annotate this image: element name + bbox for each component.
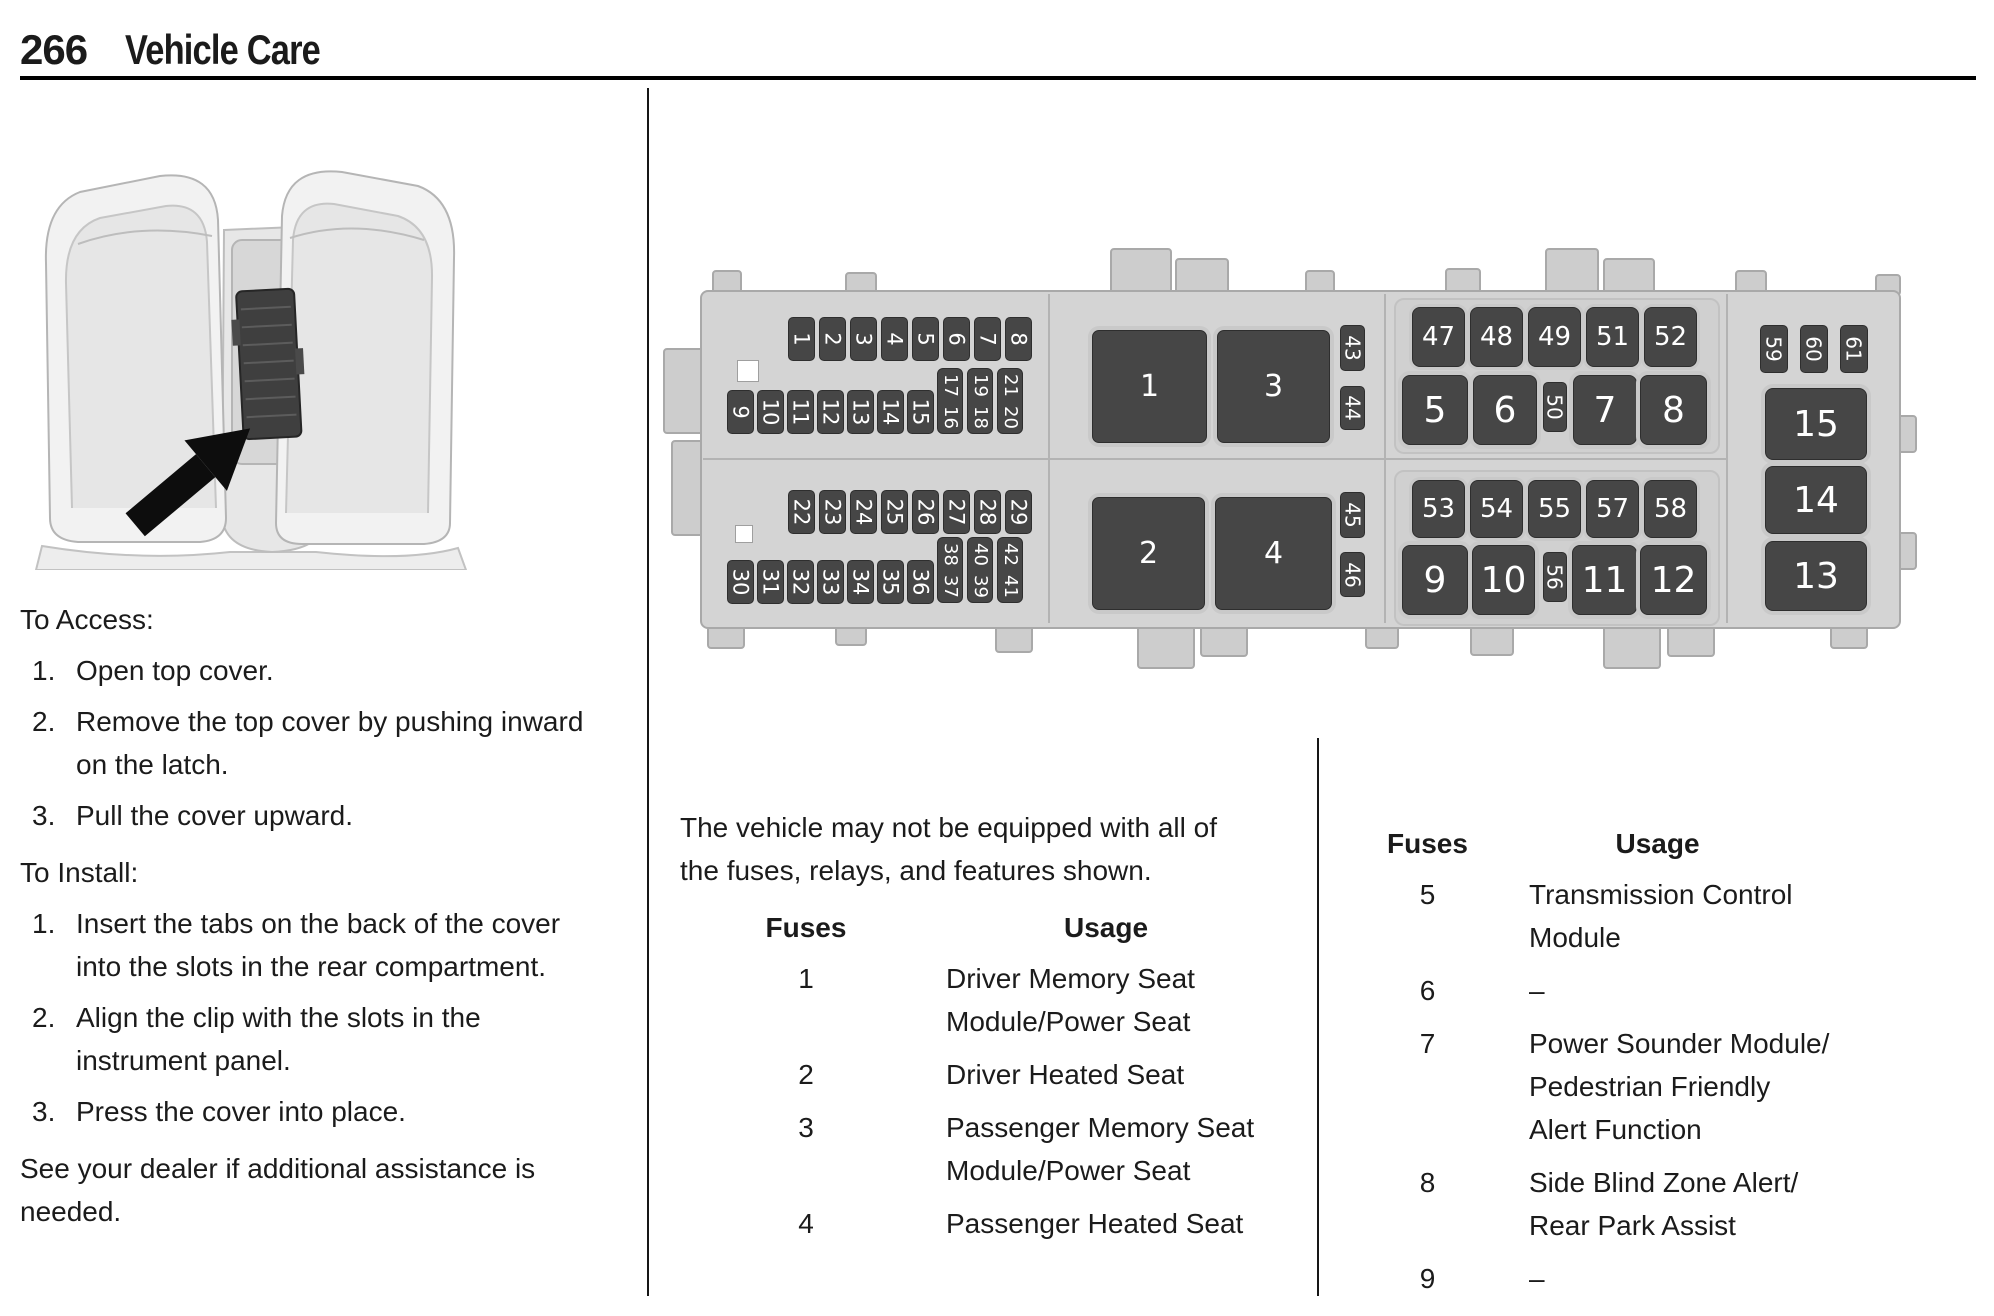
fuse-label: 32 <box>789 569 813 596</box>
text-line: instrument panel. <box>76 1039 481 1082</box>
fuse-label: 15 <box>909 399 933 426</box>
text-line: Pull the cover upward. <box>76 794 353 837</box>
text-line: See your dealer if additional assistance… <box>20 1147 620 1190</box>
step-number: 2. <box>20 700 76 786</box>
text-line: – <box>1529 1257 1545 1300</box>
fuse-label: 50 <box>1543 394 1567 419</box>
fuse-42-41: 4241 <box>997 537 1023 603</box>
fuse-15: 15 <box>1765 388 1867 460</box>
mount-tab <box>1603 623 1661 669</box>
fuses-column-header: Fuses <box>1340 822 1515 865</box>
fuses-column-header: Fuses <box>680 906 932 949</box>
fuse-usage-cell: Side Blind Zone Alert/Rear Park Assist <box>1529 1161 1798 1247</box>
fuse-label: 22 <box>790 499 814 526</box>
fuse-label: 42 <box>1000 543 1021 566</box>
fuse-35: 35 <box>877 560 904 604</box>
fuse-3: 3 <box>850 317 877 361</box>
fuse-label: 27 <box>945 499 969 526</box>
fuse-6: 6 <box>1473 375 1537 445</box>
fuse-6: 6 <box>943 317 970 361</box>
fuse-label: 45 <box>1341 502 1365 527</box>
fuse-26: 26 <box>912 490 939 534</box>
fuse-number-cell: 3 <box>680 1106 932 1192</box>
text-line: Transmission Control <box>1529 873 1792 916</box>
mount-hole <box>735 525 753 543</box>
step-text: Press the cover into place. <box>76 1090 406 1133</box>
fuse-usage-row: 8Side Blind Zone Alert/Rear Park Assist <box>1340 1161 1800 1247</box>
fuse-12: 12 <box>817 390 844 434</box>
fuse-label: 1 <box>790 332 814 345</box>
fuse-10: 10 <box>757 390 784 434</box>
text-line: Passenger Memory Seat <box>946 1106 1254 1149</box>
fuse-31: 31 <box>757 560 784 604</box>
text-line: Side Blind Zone Alert/ <box>1529 1161 1798 1204</box>
fuse-label: 12 <box>819 399 843 426</box>
fuse-usage-row: 3Passenger Memory SeatModule/Power Seat <box>680 1106 1280 1192</box>
fuse-9: 9 <box>1402 545 1468 615</box>
fuse-49: 49 <box>1528 307 1581 367</box>
text-line: Module/Power Seat <box>946 1149 1254 1192</box>
fuse-10: 10 <box>1472 545 1535 615</box>
fuse-label: 11 <box>789 399 813 426</box>
step-text: Remove the top cover by pushing inwardon… <box>76 700 583 786</box>
fuse-usage-row: 5Transmission ControlModule <box>1340 873 1800 959</box>
rear-console-illustration <box>20 88 480 570</box>
fuse-55: 55 <box>1528 480 1581 538</box>
fuse-label: 40 <box>970 543 991 566</box>
fuse-number-cell: 4 <box>680 1202 932 1245</box>
fuse-label: 21 <box>1000 374 1021 397</box>
fuse-label: 41 <box>1000 575 1021 598</box>
text-line: Power Sounder Module/ <box>1529 1022 1829 1065</box>
fuse-5: 5 <box>1402 375 1468 445</box>
fuse-number-cell: 5 <box>1340 873 1515 959</box>
fuse-number-cell: 6 <box>1340 969 1515 1012</box>
step-text: Open top cover. <box>76 649 274 692</box>
fuse-52: 52 <box>1644 307 1697 367</box>
text-line: needed. <box>20 1190 620 1233</box>
fuse-54: 54 <box>1470 480 1523 538</box>
fuse-13: 13 <box>847 390 874 434</box>
fuse-usage-row: 4Passenger Heated Seat <box>680 1202 1280 1245</box>
fuse-label: 4 <box>883 332 907 345</box>
fuse-label: 13 <box>849 399 873 426</box>
fuse-30: 30 <box>727 560 754 604</box>
fuse-2: 2 <box>1092 497 1205 610</box>
fuse-label: 61 <box>1842 336 1866 361</box>
fuse-usage-row: 1Driver Memory SeatModule/Power Seat <box>680 957 1280 1043</box>
fuse-label: 10 <box>759 399 783 426</box>
text-line: Open top cover. <box>76 649 274 692</box>
fuse-label: 19 <box>970 374 991 397</box>
fuse-40-39: 4039 <box>967 537 993 603</box>
fuse-label: 60 <box>1802 336 1826 361</box>
dealer-note: See your dealer if additional assistance… <box>20 1147 620 1233</box>
fuse-56: 56 <box>1543 552 1567 602</box>
fuse-usage-cell: Passenger Memory SeatModule/Power Seat <box>946 1106 1254 1192</box>
text-line: the fuses, relays, and features shown. <box>680 849 1280 892</box>
mount-tab <box>1137 623 1195 669</box>
step-text: Insert the tabs on the back of the cover… <box>76 902 560 988</box>
fuse-38-37: 3837 <box>937 537 963 603</box>
fuse-1: 1 <box>788 317 815 361</box>
step-number: 3. <box>20 1090 76 1133</box>
fuse-label: 39 <box>970 575 991 598</box>
text-line: Driver Heated Seat <box>946 1053 1184 1096</box>
install-heading: To Install: <box>20 851 620 894</box>
fuse-label: 20 <box>1000 406 1021 429</box>
fuse-number-cell: 8 <box>1340 1161 1515 1247</box>
fuse-53: 53 <box>1412 480 1465 538</box>
fuse-28: 28 <box>974 490 1001 534</box>
fuse-3: 3 <box>1217 330 1330 443</box>
instruction-step: 3.Press the cover into place. <box>20 1090 620 1133</box>
text-line: The vehicle may not be equipped with all… <box>680 806 1280 849</box>
fuse-27: 27 <box>943 490 970 534</box>
section-seam <box>703 458 1726 460</box>
fuse-label: 2 <box>821 332 845 345</box>
fuse-50: 50 <box>1543 382 1567 432</box>
fuse-21-20: 2120 <box>997 368 1023 434</box>
right-column: FusesUsage5Transmission ControlModule6–7… <box>1340 822 1800 1310</box>
fuse-13: 13 <box>1765 541 1867 611</box>
fuse-14: 14 <box>877 390 904 434</box>
fuse-usage-cell: Transmission ControlModule <box>1529 873 1792 959</box>
text-line: Module <box>1529 916 1792 959</box>
usage-column-header: Usage <box>932 906 1280 949</box>
fuse-label: 56 <box>1543 564 1567 589</box>
fuse-label: 35 <box>879 569 903 596</box>
equipment-note: The vehicle may not be equipped with all… <box>680 806 1280 892</box>
fuse-usage-cell: – <box>1529 1257 1545 1300</box>
fuse-box-diagram: 1234567891011121314151716191821202223242… <box>545 240 1935 670</box>
fuse-label: 14 <box>879 399 903 426</box>
fuse-usage-table-1: FusesUsage1Driver Memory SeatModule/Powe… <box>680 906 1280 1245</box>
section-seam <box>1726 294 1728 623</box>
fuse-number-cell: 2 <box>680 1053 932 1096</box>
fuse-9: 9 <box>727 390 754 434</box>
fuse-label: 6 <box>945 332 969 345</box>
page-title: Vehicle Care <box>125 26 320 74</box>
fuse-usage-cell: Passenger Heated Seat <box>946 1202 1243 1245</box>
fuse-33: 33 <box>817 560 844 604</box>
fuse-label: 17 <box>940 374 961 397</box>
fuse-1: 1 <box>1092 330 1207 443</box>
mount-tab <box>663 348 705 434</box>
left-column-text: To Access: 1.Open top cover.2.Remove the… <box>20 598 620 1233</box>
fuse-label: 28 <box>976 499 1000 526</box>
fuse-label: 18 <box>970 406 991 429</box>
fuse-36: 36 <box>907 560 934 604</box>
fuse-label: 23 <box>821 499 845 526</box>
fuse-17-16: 1716 <box>937 368 963 434</box>
fuse-19-18: 1918 <box>967 368 993 434</box>
fuse-11: 11 <box>1572 545 1637 615</box>
text-line: Driver Memory Seat <box>946 957 1195 1000</box>
fuse-4: 4 <box>1215 497 1332 610</box>
fuse-usage-row: 9– <box>1340 1257 1800 1300</box>
text-line: Remove the top cover by pushing inward <box>76 700 583 743</box>
page-number: 266 <box>20 26 87 74</box>
usage-column-header: Usage <box>1515 822 1800 865</box>
fuse-label: 16 <box>940 406 961 429</box>
fuse-label: 3 <box>852 332 876 345</box>
fuse-57: 57 <box>1586 480 1639 538</box>
fuse-47: 47 <box>1412 307 1465 367</box>
instruction-step: 2.Remove the top cover by pushing inward… <box>20 700 620 786</box>
fuse-8: 8 <box>1005 317 1032 361</box>
fuse-11: 11 <box>787 390 814 434</box>
fuse-5: 5 <box>912 317 939 361</box>
instruction-step: 3.Pull the cover upward. <box>20 794 620 837</box>
rear-fuse-block <box>230 288 308 439</box>
fuse-label: 44 <box>1341 395 1365 420</box>
mount-hole <box>737 360 759 382</box>
fuse-34: 34 <box>847 560 874 604</box>
step-text: Align the clip with the slots in theinst… <box>76 996 481 1082</box>
text-line: Module/Power Seat <box>946 1000 1195 1043</box>
text-line: Alert Function <box>1529 1108 1829 1151</box>
fuse-61: 61 <box>1840 325 1868 373</box>
mount-tab <box>1110 248 1172 296</box>
fuse-24: 24 <box>850 490 877 534</box>
fuse-number-cell: 9 <box>1340 1257 1515 1300</box>
instruction-step: 1.Open top cover. <box>20 649 620 692</box>
fuse-label: 5 <box>914 332 938 345</box>
text-line: into the slots in the rear compartment. <box>76 945 560 988</box>
fuse-7: 7 <box>1573 375 1637 445</box>
table-header-row: FusesUsage <box>680 906 1280 949</box>
fuse-7: 7 <box>974 317 1001 361</box>
fuse-2: 2 <box>819 317 846 361</box>
fuse-4: 4 <box>881 317 908 361</box>
mount-tab <box>1545 248 1599 296</box>
table-header-row: FusesUsage <box>1340 822 1800 865</box>
fuse-label: 8 <box>1007 332 1031 345</box>
access-steps: 1.Open top cover.2.Remove the top cover … <box>20 649 620 837</box>
fuse-label: 46 <box>1341 562 1365 587</box>
text-line: Rear Park Assist <box>1529 1204 1798 1247</box>
fuse-label: 25 <box>883 499 907 526</box>
fuse-usage-cell: Power Sounder Module/Pedestrian Friendly… <box>1529 1022 1829 1151</box>
fuse-usage-row: 2Driver Heated Seat <box>680 1053 1280 1096</box>
text-line: Align the clip with the slots in the <box>76 996 481 1039</box>
fuse-number-cell: 1 <box>680 957 932 1043</box>
install-steps: 1.Insert the tabs on the back of the cov… <box>20 902 620 1133</box>
fuse-usage-cell: Driver Heated Seat <box>946 1053 1184 1096</box>
fuse-label: 34 <box>849 569 873 596</box>
text-line: Press the cover into place. <box>76 1090 406 1133</box>
step-number: 3. <box>20 794 76 837</box>
fuse-48: 48 <box>1470 307 1523 367</box>
fuse-label: 37 <box>940 575 961 598</box>
fuse-23: 23 <box>819 490 846 534</box>
middle-column: The vehicle may not be equipped with all… <box>680 806 1280 1255</box>
right-seat-inset <box>286 204 432 513</box>
text-line: on the latch. <box>76 743 583 786</box>
fuse-label: 24 <box>852 499 876 526</box>
fuse-label: 33 <box>819 569 843 596</box>
instruction-step: 2.Align the clip with the slots in thein… <box>20 996 620 1082</box>
fuse-usage-row: 7Power Sounder Module/Pedestrian Friendl… <box>1340 1022 1800 1151</box>
fuse-8: 8 <box>1640 375 1707 445</box>
fuse-14: 14 <box>1765 466 1867 534</box>
text-line: Passenger Heated Seat <box>946 1202 1243 1245</box>
fuse-label: 26 <box>914 499 938 526</box>
fuse-59: 59 <box>1760 325 1788 373</box>
step-number: 1. <box>20 902 76 988</box>
access-heading: To Access: <box>20 598 620 641</box>
fuse-usage-table-2: FusesUsage5Transmission ControlModule6–7… <box>1340 822 1800 1300</box>
text-line: Pedestrian Friendly <box>1529 1065 1829 1108</box>
fuse-usage-cell: Driver Memory SeatModule/Power Seat <box>946 957 1195 1043</box>
column-divider-right <box>1317 738 1319 1296</box>
step-number: 1. <box>20 649 76 692</box>
fuse-15: 15 <box>907 390 934 434</box>
fuse-44: 44 <box>1340 386 1365 430</box>
fuse-usage-cell: – <box>1529 969 1545 1012</box>
fuse-45: 45 <box>1340 492 1365 538</box>
fuse-29: 29 <box>1005 490 1032 534</box>
text-line: Insert the tabs on the back of the cover <box>76 902 560 945</box>
text-line: – <box>1529 969 1545 1012</box>
fuse-label: 31 <box>759 569 783 596</box>
fuse-label: 38 <box>940 543 961 566</box>
instruction-step: 1.Insert the tabs on the back of the cov… <box>20 902 620 988</box>
header-rule <box>20 76 1976 80</box>
fuse-51: 51 <box>1586 307 1639 367</box>
fuse-46: 46 <box>1340 552 1365 597</box>
fuse-58: 58 <box>1644 480 1697 538</box>
fuse-12: 12 <box>1640 545 1707 615</box>
step-text: Pull the cover upward. <box>76 794 353 837</box>
fuse-label: 9 <box>729 405 753 418</box>
fuse-number-cell: 7 <box>1340 1022 1515 1151</box>
fuse-43: 43 <box>1340 325 1365 371</box>
fuse-60: 60 <box>1800 325 1828 373</box>
fuse-22: 22 <box>788 490 815 534</box>
fuse-label: 43 <box>1341 335 1365 360</box>
fuse-usage-row: 6– <box>1340 969 1800 1012</box>
fuse-label: 36 <box>909 569 933 596</box>
fuse-label: 29 <box>1007 499 1031 526</box>
fuse-label: 59 <box>1762 336 1786 361</box>
fuse-label: 30 <box>729 569 753 596</box>
fuse-32: 32 <box>787 560 814 604</box>
step-number: 2. <box>20 996 76 1082</box>
fuse-25: 25 <box>881 490 908 534</box>
fuse-label: 7 <box>976 332 1000 345</box>
